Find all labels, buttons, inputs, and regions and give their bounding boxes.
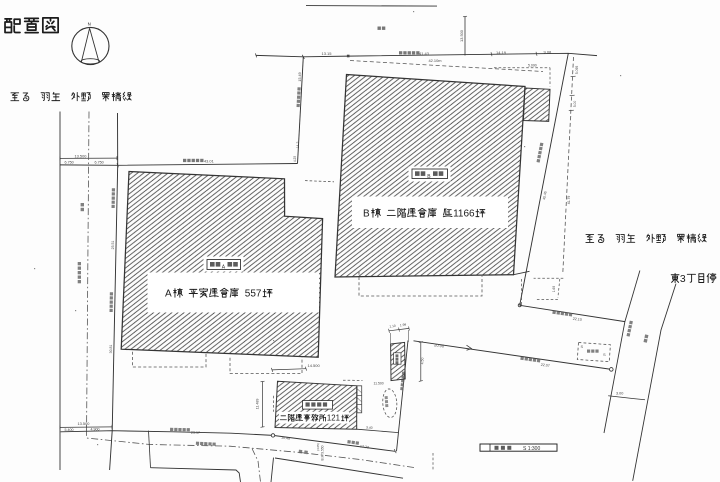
svg-text:11.500: 11.500 [374,382,384,386]
svg-text:11.489: 11.489 [256,399,260,410]
svg-text:14.2: 14.2 [296,142,300,149]
svg-text:41.79: 41.79 [567,196,571,205]
svg-text:42.10m: 42.10m [429,58,442,63]
svg-text:B.M 9.550: B.M 9.550 [321,445,325,460]
svg-text:S: S [603,352,606,357]
svg-text:1.99: 1.99 [400,323,407,328]
svg-text:13.15: 13.15 [322,51,333,56]
svg-text:(4.05): (4.05) [316,443,320,451]
svg-text:9.08: 9.08 [544,50,553,55]
svg-text:B: B [363,209,370,220]
svg-text:15.49: 15.49 [298,72,302,81]
svg-text:6.750: 6.750 [95,160,104,164]
svg-text:5.400: 5.400 [65,428,74,432]
svg-text:6.750: 6.750 [65,160,74,164]
svg-text:S: S [581,344,584,349]
svg-text:1.69: 1.69 [552,286,556,293]
svg-text:557: 557 [245,289,262,300]
svg-text:S 1:300: S 1:300 [523,446,540,452]
svg-text:30.81: 30.81 [109,345,113,354]
svg-text:13.500: 13.500 [459,29,464,42]
svg-text:5.090: 5.090 [528,63,537,67]
svg-text:4.50: 4.50 [421,358,425,365]
svg-text:43.01: 43.01 [204,158,214,163]
svg-text:23.17: 23.17 [191,431,200,435]
svg-text:13.500: 13.500 [75,153,88,158]
svg-text:1.10: 1.10 [389,324,396,329]
svg-text:3.40: 3.40 [366,425,373,430]
svg-text:14.19: 14.19 [496,50,507,55]
svg-text:14.500: 14.500 [308,363,321,368]
svg-text:N: N [88,22,91,27]
svg-text:5.095: 5.095 [575,66,579,75]
svg-text:1166: 1166 [453,209,475,220]
svg-text:25.51: 25.51 [111,241,115,250]
svg-text:121: 121 [327,414,340,423]
svg-text:13.500: 13.500 [78,421,91,426]
svg-text:5.00: 5.00 [573,101,577,108]
svg-text:41.43: 41.43 [419,51,430,56]
svg-text:4.25: 4.25 [293,156,297,162]
svg-text:3: 3 [680,274,686,285]
svg-text:4.900: 4.900 [91,428,100,432]
svg-text:3.00: 3.00 [616,391,623,395]
svg-text:A: A [165,289,172,300]
